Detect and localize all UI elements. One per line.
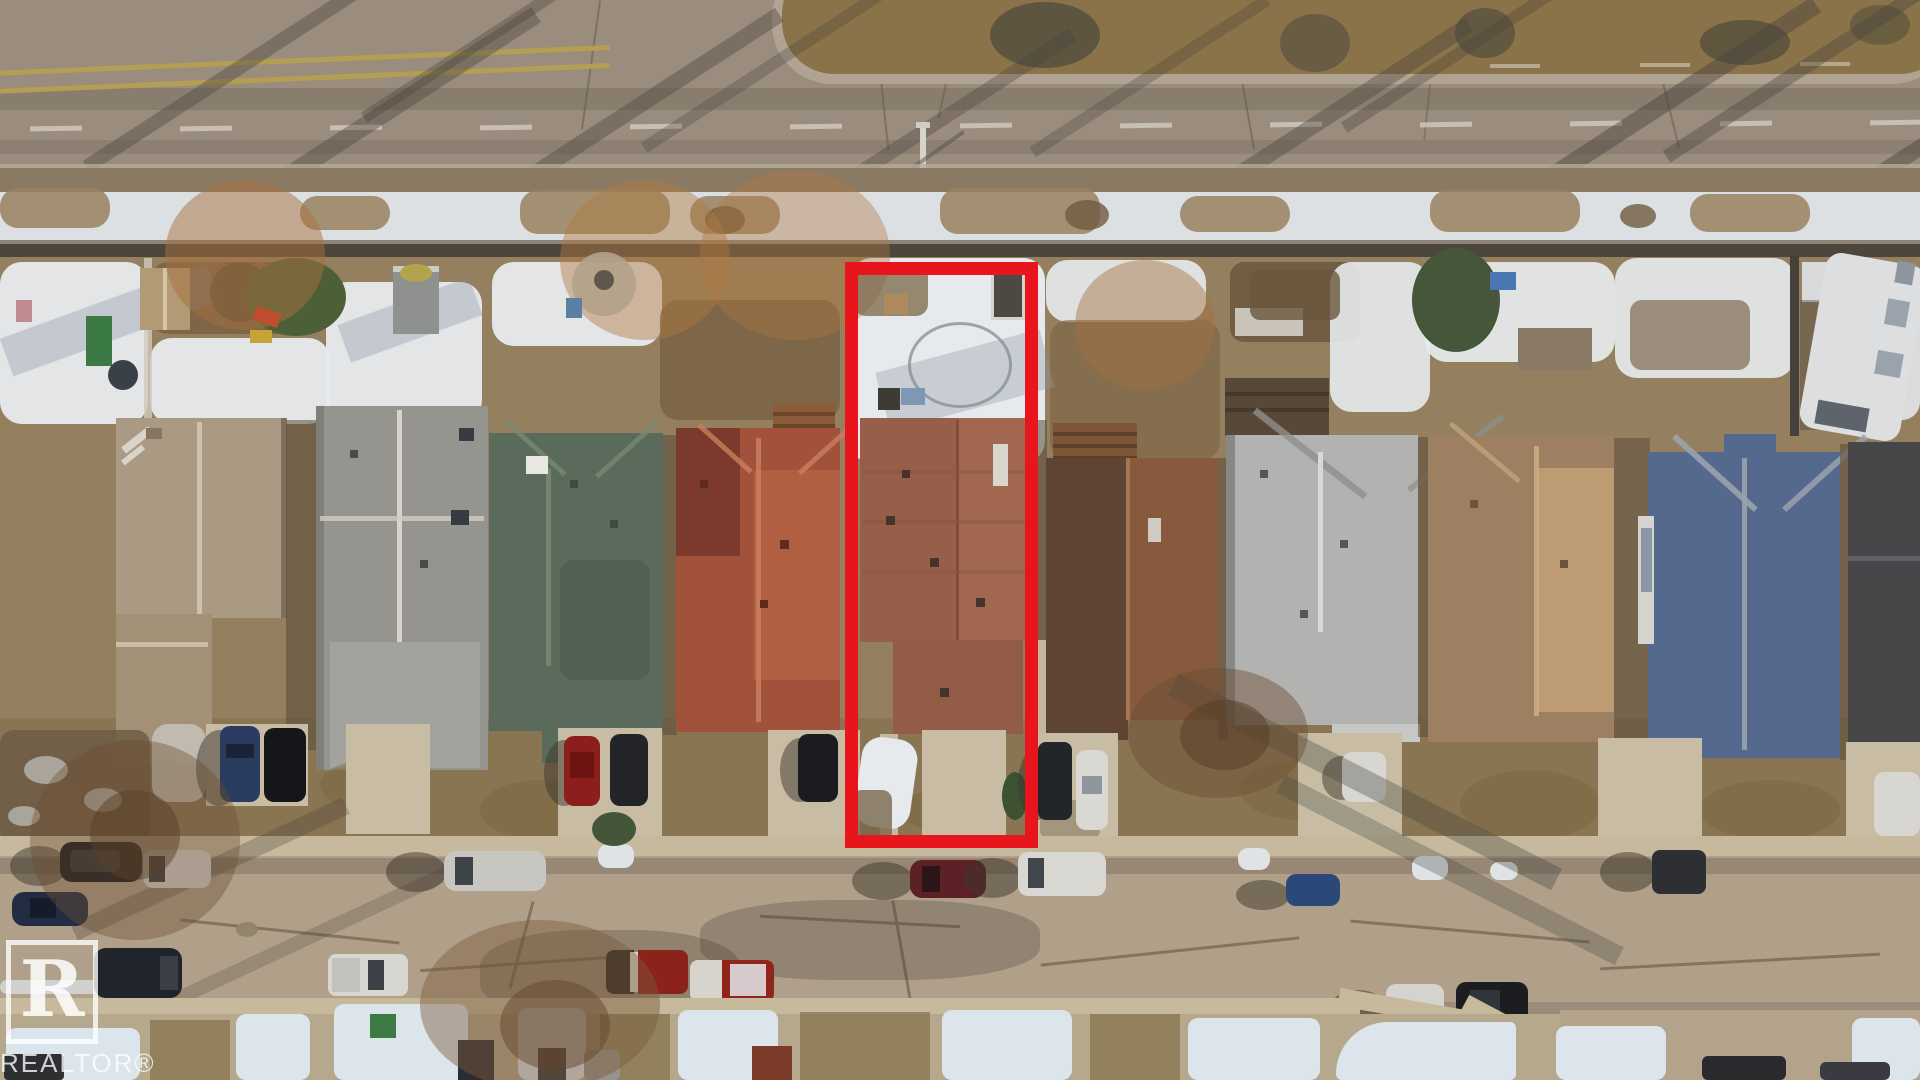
driveway — [346, 724, 430, 834]
truck-bed — [332, 958, 360, 992]
house-i-windows — [1641, 528, 1652, 592]
yellow-bush — [400, 264, 432, 282]
house-h-ridge — [1534, 446, 1539, 716]
house-g-ridge — [1318, 452, 1323, 632]
conifer-tree — [1412, 248, 1500, 352]
house-gap-shadow — [286, 420, 316, 750]
lane-dash — [1870, 120, 1920, 126]
bottom-lawn — [800, 1012, 930, 1080]
median-tree — [1280, 14, 1350, 72]
bottom-snow-lawn — [236, 1014, 310, 1080]
bare-tree-canopy — [1075, 260, 1215, 390]
fire-pit — [594, 270, 614, 290]
car-sunroof — [1082, 776, 1102, 794]
property-highlight-box — [845, 262, 1038, 848]
aerial-listing-photo: R REALTOR® — [0, 0, 1920, 1080]
bottom-snow-lawn — [1556, 1026, 1666, 1080]
green-shrub — [592, 812, 636, 846]
blue-recycle-bin — [1490, 272, 1516, 290]
house-b-ridge — [397, 410, 402, 658]
boulevard-brush — [1430, 190, 1580, 232]
car-shadow — [852, 862, 914, 900]
bare-tree-core — [500, 980, 610, 1070]
lane-dash — [790, 124, 842, 130]
lane-dash — [480, 125, 532, 131]
car-glass — [226, 744, 254, 758]
truck-bed-snow — [730, 964, 766, 996]
car-shadow — [1600, 852, 1656, 892]
house-b-shade — [316, 406, 324, 770]
road-tire-band — [0, 140, 1920, 154]
house-b-skylight — [451, 510, 469, 525]
roof-vent — [760, 600, 768, 608]
bottom-snow-lawn — [1188, 1018, 1320, 1080]
roof-vent — [1300, 610, 1308, 618]
boulevard-brush — [1690, 194, 1810, 232]
house-c-shade-patch — [560, 560, 650, 680]
house-i-wing — [1724, 434, 1776, 458]
roof-vent — [610, 520, 618, 528]
house-b-skylight — [459, 428, 474, 441]
car-glass — [455, 857, 473, 885]
deck-slat — [1225, 408, 1329, 412]
yard-clutter — [1630, 300, 1750, 370]
lane-dash — [1120, 123, 1172, 129]
car-glass — [368, 960, 384, 990]
bottom-lawn — [150, 1020, 230, 1080]
realtor-logo-letter: R — [20, 951, 85, 1029]
boulevard-shrub — [1620, 204, 1656, 228]
tan-shed-ridge — [163, 268, 167, 330]
house-d-ridge — [756, 438, 761, 722]
house-f-chimney — [1148, 518, 1161, 542]
green-trash-bin — [370, 1014, 396, 1038]
lawn-patch — [1700, 780, 1840, 840]
roof-vent — [570, 480, 578, 488]
roof-vent — [1340, 540, 1348, 548]
bare-tree-canopy — [165, 180, 325, 330]
car-glass — [1028, 858, 1044, 888]
lane-dash — [960, 123, 1012, 129]
car-shadow — [386, 852, 446, 892]
parked-car-partial — [1820, 1062, 1890, 1080]
green-trash-bin — [86, 316, 112, 366]
house-h-roof-light — [1538, 468, 1614, 712]
manhole-cover — [236, 922, 258, 937]
boulevard-shrub — [1065, 200, 1109, 230]
roof-vent — [1560, 560, 1568, 568]
realtor-watermark: R REALTOR® — [6, 940, 156, 1079]
house-a-wing-ridge — [116, 642, 208, 647]
blue-barrel — [566, 298, 582, 318]
boulevard-brush — [1180, 196, 1290, 232]
realtor-brand-text: REALTOR® — [0, 1048, 156, 1079]
bottom-snow-lawn — [942, 1010, 1072, 1080]
boulevard-brush — [0, 188, 110, 228]
lane-dash — [1490, 64, 1540, 68]
house-f-ridge — [1126, 458, 1130, 720]
bare-tree-core — [90, 790, 180, 880]
parked-car-black — [798, 734, 838, 802]
house-d-dark-section — [676, 428, 740, 556]
house-c-skylight — [526, 456, 548, 474]
streetlight-head — [916, 122, 930, 128]
bottom-lawn — [1090, 1014, 1180, 1080]
curb-snow-pile — [598, 844, 634, 868]
pink-yard-toy — [16, 300, 32, 322]
deck-slat — [1225, 392, 1329, 396]
house-j-roof — [1848, 442, 1920, 762]
street-car-dark — [1652, 850, 1706, 894]
parked-car-dark — [610, 734, 648, 806]
wood-deck — [1518, 328, 1592, 370]
car-shadow — [1236, 880, 1290, 910]
roof-vent — [1260, 470, 1268, 478]
roof-vent — [780, 540, 789, 549]
car-glass — [570, 752, 594, 778]
house-d-bright-section — [754, 470, 840, 680]
roof-vent — [700, 480, 708, 488]
pergola-slat — [1053, 432, 1137, 436]
house-j-ridge — [1848, 556, 1920, 561]
lane-dash — [30, 126, 82, 132]
roof-vent — [420, 560, 428, 568]
bottom-snow-lawn — [1336, 1022, 1516, 1080]
lane-dash — [1420, 122, 1472, 128]
yellow-yard-toy — [250, 330, 272, 343]
car-glass — [160, 956, 178, 990]
parked-car-white — [1874, 772, 1920, 836]
car-glass — [922, 866, 940, 892]
parked-suv-black — [264, 728, 306, 802]
pergola-slat — [773, 412, 835, 416]
parked-car-partial — [1702, 1056, 1786, 1080]
realtor-logo: R — [6, 940, 98, 1044]
parked-truck-dark — [1038, 742, 1072, 820]
roof-vent — [1470, 500, 1478, 508]
rv-window — [1884, 298, 1910, 327]
covered-trampoline — [108, 360, 138, 390]
lane-dash — [1640, 63, 1690, 67]
street-pickup-white-cab — [690, 960, 722, 1002]
dark-side-fence — [1790, 256, 1799, 436]
rv-window — [1874, 350, 1904, 378]
bare-tree-core — [1180, 700, 1270, 770]
house-a-ridge — [197, 422, 202, 614]
street-car-blue — [1286, 874, 1340, 906]
curb-snow-pile — [1238, 848, 1270, 870]
lane-dash — [180, 126, 232, 132]
rv-window — [1894, 261, 1916, 286]
house-f-roof-dark — [1046, 458, 1128, 740]
house-c-ridge — [546, 468, 551, 666]
car-shadow — [962, 858, 1022, 898]
house-a-chimney — [146, 428, 162, 439]
house-gap-shadow — [663, 435, 677, 735]
yard-clutter — [1250, 270, 1340, 320]
pergola-slat — [1053, 444, 1137, 448]
roof-vent — [350, 450, 358, 458]
yard-snow — [150, 338, 330, 424]
red-storage-box — [752, 1046, 792, 1080]
house-i-ridge — [1742, 458, 1747, 750]
